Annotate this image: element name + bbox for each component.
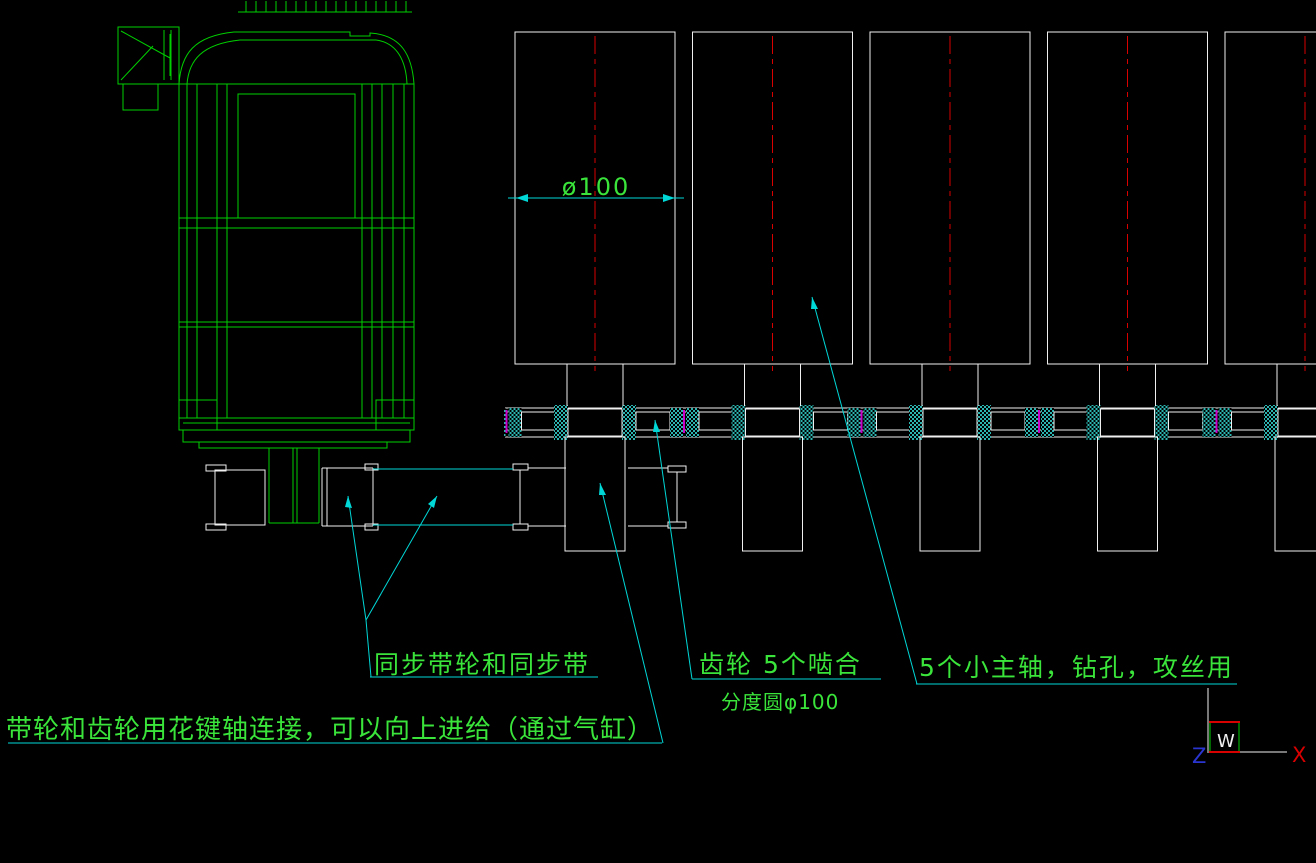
- motor-body: [179, 84, 414, 430]
- gear-segment-4: [1087, 405, 1265, 440]
- ucs-world-label: W: [1217, 731, 1235, 752]
- drawing-canvas[interactable]: ø100 同步带轮和同步带 齿轮 5个啮合 分度圆φ100 5个小主轴，钻孔，攻…: [0, 0, 1316, 863]
- note-spline-shaft: 带轮和齿轮用花键轴连接，可以向上进给（通过气缸）: [6, 715, 654, 745]
- dimension-label: ø100: [562, 173, 631, 201]
- belt-top-bottom: [373, 469, 513, 525]
- spindle-2: [693, 32, 853, 551]
- leader-arrowheads: [345, 297, 818, 508]
- belt-lines: [373, 469, 513, 525]
- spindles: [515, 32, 1316, 551]
- gear-segment-3: [909, 405, 1087, 440]
- cad-model-space[interactable]: ø100 同步带轮和同步带 齿轮 5个啮合 分度圆φ100 5个小主轴，钻孔，攻…: [0, 0, 1316, 863]
- gear-segment-1: [554, 405, 732, 440]
- motor-output-shaft: [269, 448, 319, 523]
- leader-spindles: [812, 297, 917, 684]
- annotations: 同步带轮和同步带 齿轮 5个啮合 分度圆φ100 5个小主轴，钻孔，攻丝用 带轮…: [6, 650, 1234, 745]
- motor-body-panel: [238, 94, 355, 218]
- ucs-icon: W Z X: [1192, 688, 1306, 768]
- spindle-4: [1048, 32, 1208, 551]
- motor-junction-box-lower: [123, 84, 158, 110]
- motor-base-plate-2: [199, 442, 387, 448]
- motor-top-dome-inner: [187, 40, 407, 84]
- leader-gear: [655, 420, 692, 679]
- ucs-z-label: Z: [1192, 744, 1206, 768]
- dimension-100: ø100: [508, 173, 684, 202]
- motor-body-bands: [179, 218, 414, 423]
- motor-body-ribs: [187, 84, 404, 418]
- gear-segment-2: [732, 405, 910, 440]
- motor-junction-box-funnel: [121, 30, 171, 80]
- motor-foot-left: [179, 400, 217, 430]
- belt-housing-main-box: [322, 468, 677, 526]
- ucs-x-label: X: [1292, 743, 1306, 767]
- spindle-3: [870, 32, 1030, 551]
- gear-segment-5: [1264, 405, 1316, 440]
- motor-base-plate: [183, 430, 410, 442]
- electric-motor: [118, 1, 414, 523]
- motor-cooling-fins: [238, 1, 412, 12]
- note-pitch-circle: 分度圆φ100: [721, 690, 839, 714]
- spindle-5: [1225, 32, 1316, 551]
- spindle-1: [515, 32, 675, 551]
- note-sync-belt: 同步带轮和同步带: [374, 650, 590, 679]
- belt-housing-flanges: [206, 464, 686, 530]
- belt-housing-left-box: [215, 470, 265, 525]
- note-gear-mesh: 齿轮 5个啮合: [699, 650, 862, 679]
- leader-spline: [600, 483, 663, 743]
- note-spindles: 5个小主轴，钻孔，攻丝用: [919, 653, 1234, 682]
- belt-housing: [206, 464, 686, 530]
